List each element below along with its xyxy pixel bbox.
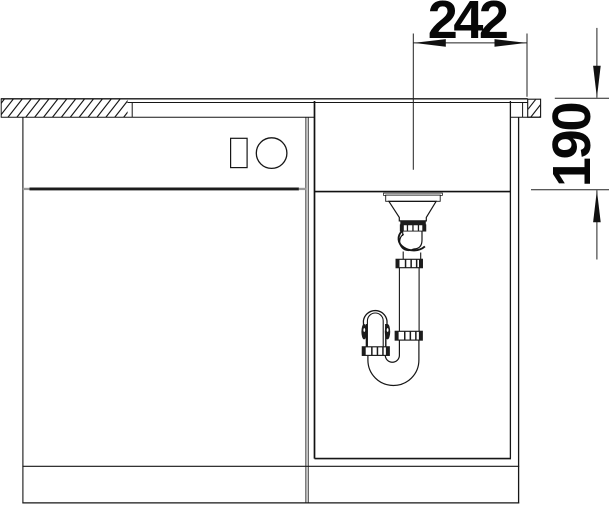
svg-text:190: 190 — [542, 103, 602, 187]
